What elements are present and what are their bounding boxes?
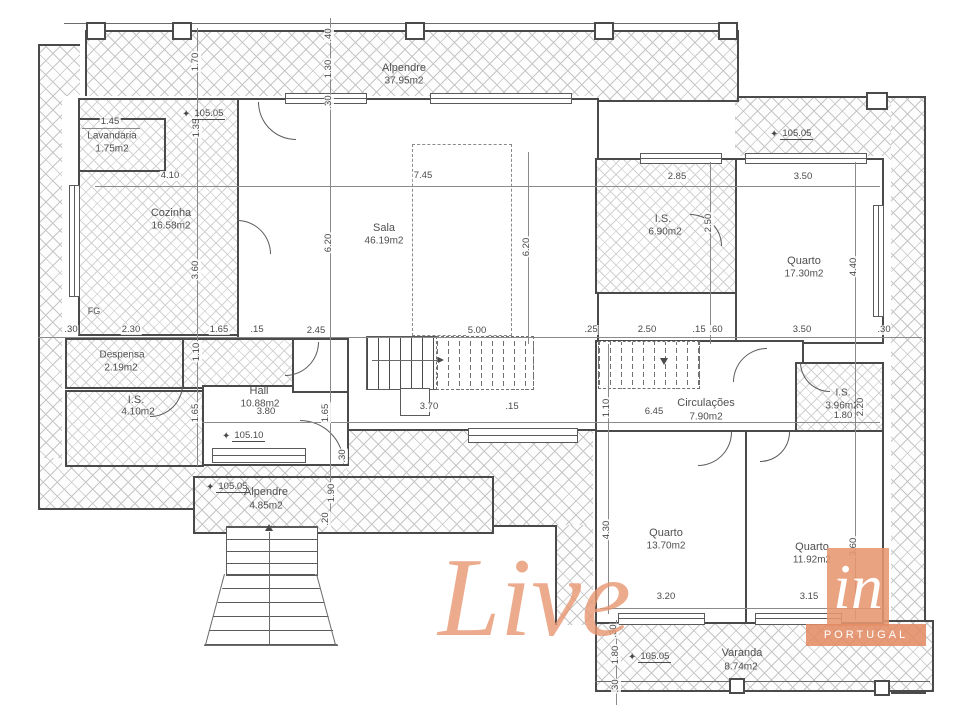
level-value: 105.05 — [638, 651, 671, 663]
dim-label: 3.20 — [656, 592, 677, 602]
dim-line — [202, 422, 880, 423]
dim-label: .30 — [324, 94, 334, 109]
room-label: Quarto — [649, 527, 683, 539]
dim-label: 1.10 — [602, 398, 612, 419]
dim-label: 5.00 — [467, 326, 488, 336]
dim-label: 3.80 — [256, 407, 277, 417]
room-label: Despensa — [99, 350, 144, 361]
room-area: 16.58m2 — [152, 221, 191, 232]
window-quarto1-top — [745, 153, 867, 164]
room-area: 6.90m2 — [648, 227, 681, 238]
window-hall-front — [212, 448, 306, 463]
room-area: 7.90m2 — [689, 412, 722, 423]
benchmark-icon: ✦ — [770, 130, 778, 140]
benchmark-icon: ✦ — [628, 653, 636, 663]
dim-label: 2.20 — [856, 397, 866, 418]
stair-down-arrow-icon — [660, 358, 668, 365]
dim-line — [82, 128, 140, 129]
dim-label: 1.70 — [191, 52, 201, 73]
dim-label: 1.65 — [321, 403, 331, 424]
dim-label: 1.45 — [100, 117, 121, 127]
room-area: 8.74m2 — [724, 662, 757, 673]
dim-label: 4.10 — [160, 171, 181, 181]
dim-label: 3.50 — [793, 172, 814, 182]
fg-label: FG — [88, 306, 101, 316]
dim-label: .20 — [321, 511, 331, 526]
dim-line — [608, 344, 609, 614]
benchmark-icon: ✦ — [206, 483, 214, 493]
dim-label: 2.50 — [704, 213, 714, 234]
room-label: Alpendre — [244, 486, 288, 498]
dim-label: .30 — [609, 623, 619, 638]
dim-label: 2.45 — [306, 326, 327, 336]
room-area: 1.75m2 — [95, 144, 128, 155]
benchmark-icon: ✦ — [222, 432, 230, 442]
stair-up-arrow-icon — [438, 357, 444, 363]
dim-line — [38, 337, 922, 338]
room-area: 4.10m2 — [121, 407, 154, 418]
dim-label: 6.20 — [522, 237, 532, 258]
dim-label: 3.70 — [419, 402, 440, 412]
room-label: I.S. — [835, 388, 850, 399]
column — [594, 22, 614, 40]
room-area: 17.30m2 — [785, 269, 824, 280]
level-marker: ✦ 105.05 — [770, 128, 813, 140]
room-label: I.S. — [128, 394, 145, 406]
porch-top-outer-line — [64, 23, 736, 24]
dim-label: 6.45 — [644, 407, 665, 417]
dim-label: 7.45 — [413, 171, 434, 181]
dim-label: 2.50 — [637, 325, 658, 335]
dim-label: 3.15 — [799, 592, 820, 602]
room-area: 2.19m2 — [104, 363, 137, 374]
dim-label: 1.10 — [192, 342, 202, 363]
room-label: Alpendre — [382, 62, 426, 74]
window-quarto1-right — [873, 205, 884, 317]
column — [874, 680, 890, 696]
stair-direction-line — [372, 360, 438, 361]
dim-label: 2.85 — [667, 172, 688, 182]
level-value: 105.05 — [192, 108, 225, 120]
level-value: 105.05 — [216, 481, 249, 493]
level-value: 105.10 — [232, 430, 265, 442]
level-marker: ✦ 105.10 — [222, 430, 265, 442]
column — [172, 22, 192, 40]
dim-label: .25 — [583, 325, 598, 335]
dim-label: 1.80 — [833, 411, 854, 421]
dim-label: 1.65 — [209, 325, 230, 335]
column — [729, 678, 745, 694]
entrance-up-arrow-icon — [265, 524, 273, 531]
room-label: Quarto — [787, 255, 821, 267]
dim-label: .15 — [249, 325, 264, 335]
room-area: 13.70m2 — [647, 541, 686, 552]
window-quarto3-bottom — [755, 613, 842, 625]
dim-label: 1.35 — [192, 118, 202, 139]
entrance-axis-line — [269, 532, 270, 644]
column — [718, 22, 738, 40]
stair-flight-dashed-2 — [598, 341, 700, 389]
floor-plan: Alpendre 37.95m2 Lavandaria 1.75m2 Cozin… — [0, 0, 958, 720]
column — [866, 92, 888, 110]
dim-label: 4.30 — [602, 520, 612, 541]
room-label: Hall — [250, 385, 269, 397]
dim-label: 3.60 — [849, 537, 859, 558]
window-quarto2-bottom — [618, 613, 705, 625]
dim-label: 1.30 — [324, 59, 334, 80]
dim-label: 6.20 — [324, 233, 334, 254]
room-label: I.S. — [655, 213, 672, 225]
stair-flight-dashed-1 — [436, 336, 534, 390]
dim-label: .30 — [876, 325, 891, 335]
pavement-strip-varanda — [555, 525, 597, 625]
pavement-right-band — [891, 96, 926, 694]
dim-label: 3.50 — [792, 325, 813, 335]
column — [86, 22, 106, 40]
dim-line — [600, 608, 885, 609]
dim-label: 2.30 — [121, 325, 142, 335]
room-area: 46.19m2 — [365, 236, 404, 247]
level-marker: ✦ 105.05 — [628, 651, 671, 663]
benchmark-icon: ✦ — [182, 110, 190, 120]
dim-label: 1.80 — [611, 645, 621, 666]
window-sala-front — [468, 428, 578, 443]
room-area: 4.85m2 — [249, 501, 282, 512]
column — [405, 22, 425, 40]
dim-line — [710, 162, 711, 344]
stair-flight-solid — [366, 336, 438, 390]
level-value: 105.05 — [780, 128, 813, 140]
room-label: Cozinha — [151, 207, 191, 219]
dim-line — [197, 28, 198, 466]
dim-label: .30 — [63, 325, 78, 335]
dim-label: 4.40 — [849, 257, 859, 278]
room-area: 37.95m2 — [385, 76, 424, 87]
dim-label: .15 — [691, 325, 706, 335]
room-area: 11.92m2 — [793, 555, 831, 566]
room-label: Quarto — [795, 541, 829, 553]
room-label: Varanda — [722, 647, 763, 659]
level-marker: ✦ 105.05 — [206, 481, 249, 493]
room-label: Circulações — [677, 397, 734, 409]
dim-label: 1.65 — [191, 403, 201, 424]
dim-label: .40 — [324, 27, 334, 42]
room-label: Sala — [373, 222, 395, 234]
dim-label: 1.90 — [327, 483, 337, 504]
window-sala-top-2 — [430, 93, 572, 104]
window-kitchen-left — [69, 185, 80, 297]
entrance-steps-straight — [226, 526, 318, 576]
room-label: Lavandaria — [87, 131, 136, 142]
dim-label: 3.60 — [191, 260, 201, 281]
entrance-steps-bottom-edge — [204, 645, 338, 646]
dim-line — [95, 186, 880, 187]
level-marker: ✦ 105.05 — [182, 108, 225, 120]
dim-label: .15 — [504, 402, 519, 412]
dim-label: .30 — [611, 678, 621, 693]
dim-label: .30 — [338, 448, 348, 463]
dim-label: .60 — [708, 325, 723, 335]
